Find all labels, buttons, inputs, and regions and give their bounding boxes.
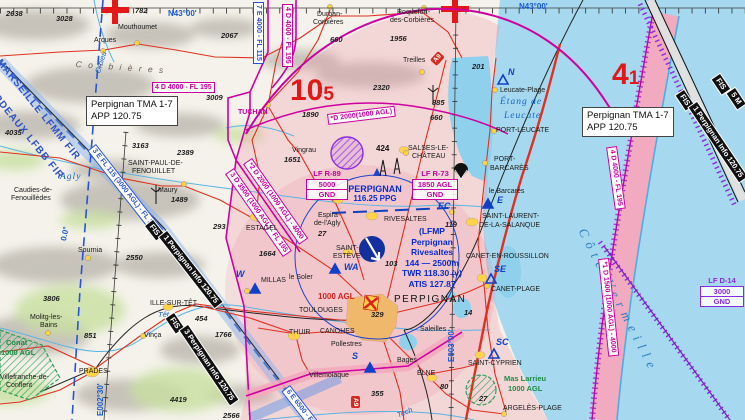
vfr-point-ec: EC (438, 202, 451, 211)
vor-label: PERPIGNAN 116.25 PPG (342, 184, 408, 203)
spot-660-durban: 660 (330, 36, 343, 44)
max-elev-west: 105 (290, 74, 334, 108)
airport-atis: ATIS 127.87 (402, 279, 462, 290)
max-elev-west-sub: 5 (323, 84, 334, 105)
spot-355: 355 (371, 390, 384, 398)
reserve-conat-2: 1000 AGL (1, 349, 35, 357)
tma-note-west: Perpignan TMA 1-7 APP 120.75 (86, 96, 178, 126)
asp-4d-top: 4 D 4000 - FL 195 (282, 4, 293, 67)
area-lfr73: LF R-73 1850 AGL GND (412, 169, 458, 200)
town-st-laurent-2: DE-LA-SALANQUE (479, 222, 540, 229)
town-port-barcares-2: BARCARÈS (490, 165, 529, 172)
town-elne: ELNE (417, 370, 435, 377)
spot-4419: 4419 (170, 396, 187, 404)
airport-name2: Rivesaltes (402, 247, 462, 258)
area-lfd14-upper: 3000 (701, 287, 743, 297)
town-sournia: Sournia (78, 247, 102, 254)
town-canohes: CANOHES (320, 328, 355, 335)
etang-leucate-1: Étang de (500, 98, 542, 108)
reserve-conat-1: Conat (6, 339, 27, 347)
spot-2550: 2550 (126, 254, 143, 262)
spot-885: 885 (432, 99, 445, 107)
town-millas: MILLAS (261, 277, 286, 284)
town-ille-sur-tet: ILLE-SUR-TÊT (150, 300, 197, 307)
spot-2067: 2067 (221, 32, 238, 40)
town-le-barcares: le Barcarès (489, 188, 524, 195)
obstacle-424: 424 (376, 145, 389, 153)
spot-1890: 1890 (302, 111, 319, 119)
town-prades: PRADES (79, 368, 108, 375)
tma-note-east: Perpignan TMA 1-7 APP 120.75 (582, 107, 674, 137)
spot-329: 329 (371, 311, 384, 319)
town-caudies-1: Caudies-de- (14, 187, 52, 194)
spot-4035: 4035 (5, 129, 22, 137)
town-espira-2: de-l'Agly (314, 220, 341, 227)
airport-name1: Perpignan (402, 237, 462, 248)
reserve-mas-larrieu-1: Mas Larrieu (504, 375, 546, 383)
spot-201: 201 (472, 63, 485, 71)
town-port-leucate: PORT-LEUCATE (496, 127, 549, 134)
closed-airfield-marker (363, 295, 379, 311)
town-st-paul-2: FENOUILLET (132, 168, 175, 175)
town-salses-1: SALSES-LE- (408, 145, 448, 152)
area-lfd14-id: LF D-14 (700, 276, 744, 285)
etang-leucate-2: Leucate (504, 112, 541, 122)
city-perpignan: PERPIGNAN (394, 295, 466, 306)
spot-2638: 2638 (6, 10, 23, 18)
town-rivesaltes: RIVESALTES (384, 216, 427, 223)
town-st-paul-1: SAINT-PAUL-DE- (128, 160, 183, 167)
spot-782: 782 (135, 7, 148, 15)
vor-freq: 116.25 PPG (342, 194, 408, 203)
spot-454: 454 (195, 315, 208, 323)
town-mouthoumet: Mouthoumet (118, 24, 157, 31)
airport-symbol-lfmp (359, 236, 385, 262)
town-estagel: ESTAGEL (246, 225, 278, 232)
area-lfr89-upper: 5000 (307, 180, 347, 190)
lat-label-west: N43°00' (168, 10, 197, 18)
lon-label-west: E002°30' (97, 383, 105, 416)
max-elev-east: 41 (612, 58, 639, 92)
vor-name: PERPIGNAN (342, 184, 408, 194)
asp-7e-top: 7 E 4000 - FL 115 (253, 2, 264, 64)
town-roquefort-1: Roquefort- (397, 9, 430, 16)
vfr-point-n: N (508, 68, 515, 77)
town-thuir: THUIR (289, 329, 310, 336)
vfr-point-e: E (497, 196, 503, 205)
town-maury: Maury (158, 187, 177, 194)
town-vingrau: Vingrau (292, 147, 316, 154)
asp-4d-west: 4 D 4000 - FL 195 (152, 82, 215, 93)
spot-3009: 3009 (206, 94, 223, 102)
spot-1956: 1956 (390, 35, 407, 43)
spot-1766: 1766 (215, 331, 232, 339)
spot-3028: 3028 (56, 15, 73, 23)
tma-note-line1: Perpignan TMA 1-7 (91, 99, 173, 111)
tma-note-line2: APP 120.75 (91, 111, 173, 123)
vfr-point-sc: SC (496, 338, 509, 347)
graticule-cross-west (101, 0, 129, 24)
spot-1651: 1651 (284, 156, 301, 164)
motorway-badge-a9-south: A9 (351, 396, 360, 408)
area-lfd14-lower: GND (701, 297, 743, 306)
spot-1489: 1489 (171, 196, 188, 204)
spot-1664: 1664 (259, 250, 276, 258)
lat-label-east: N43°00' (519, 3, 548, 11)
town-saleilles: Saleilles (420, 326, 446, 333)
area-lfd14: LF D-14 3000 GND (700, 276, 744, 307)
spot-27-argeles: 27 (479, 395, 487, 403)
area-lfr73-lower: GND (413, 190, 457, 199)
spot-2389: 2389 (177, 149, 194, 157)
area-lfr73-upper: 1850 AGL (413, 180, 457, 190)
town-st-esteve-2: ESTÈVE (333, 253, 361, 260)
town-canet-en-roussillon: CANET-EN-ROUSSILLON (466, 253, 549, 260)
town-st-laurent-1: SAINT-LAURENT- (482, 213, 539, 220)
town-port-barcares-1: PORT- (494, 156, 515, 163)
town-molitg-2: Bains (40, 322, 58, 329)
town-tuchan: TUCHAN (238, 109, 268, 116)
town-bages: Bages (397, 357, 417, 364)
town-vinca: Vinça (144, 332, 161, 339)
vfr-point-s: S (352, 352, 358, 361)
max-elev-west-big: 10 (290, 74, 323, 107)
town-st-esteve-1: SAINT- (336, 245, 359, 252)
airport-twr: TWR 118.30 (v) (402, 268, 462, 279)
vfr-point-w: W (236, 270, 245, 279)
spot-27-espira: 27 (318, 230, 326, 238)
vfr-point-wa: WA (344, 263, 359, 272)
city-max-alt: 1000 AGL (318, 293, 355, 301)
activity-zone-circle (331, 137, 363, 169)
spot-103: 103 (385, 260, 398, 268)
spot-80: 80 (440, 383, 448, 391)
town-treilles: Treilles (403, 57, 425, 64)
town-roquefort-2: des-Corbières (390, 17, 434, 24)
spot-3163: 3163 (132, 142, 149, 150)
reserve-mas-larrieu-2: 1000 AGL (508, 385, 542, 393)
town-argeles-plage: ARGELÈS-PLAGE (503, 405, 562, 412)
town-molitg-1: Molitg-les- (30, 314, 62, 321)
town-canet-plage: CANET-PLAGE (491, 286, 540, 293)
town-le-soler: le Soler (289, 274, 313, 281)
town-caudies-2: Fenouillèdes (11, 195, 51, 202)
map-viewport[interactable]: N43°00'N43°00'E002°30'E003°00'0.0°MARSEI… (0, 0, 745, 420)
tma-note-line1: Perpignan TMA 1-7 (587, 110, 669, 122)
spot-293: 293 (213, 223, 226, 231)
river-agly: Agly (60, 173, 81, 183)
airport-dims: 144 — 2500m (402, 258, 462, 269)
area-lfr73-id: LF R-73 (412, 169, 458, 178)
spot-660-treilles: 660 (430, 114, 443, 122)
max-elev-east-big: 4 (612, 58, 629, 91)
tma-note-line2: APP 120.75 (587, 122, 669, 134)
town-toulouges: TOULOUGES (299, 307, 343, 314)
spot-14: 14 (464, 309, 472, 317)
vfr-point-se: SE (494, 265, 506, 274)
town-leucate-plage: Leucate-Plage (500, 87, 545, 94)
town-st-cyprien: SAINT-CYPRIEN (468, 360, 522, 367)
area-lfr89-id: LF R-89 (306, 169, 348, 178)
lon-label-east: E003°00' (448, 329, 456, 362)
airport-icao: (LFMP (402, 226, 462, 237)
town-salses-2: CHÂTEAU (412, 153, 445, 160)
town-durban-2: Corbières (313, 19, 343, 26)
max-elev-east-sub: 1 (629, 68, 640, 89)
town-villefranche-2: Conflent (6, 382, 32, 389)
town-villefranche-1: Villefranche-de- (0, 374, 49, 381)
spot-851: 851 (84, 332, 97, 340)
spot-2320: 2320 (373, 84, 390, 92)
town-villemolaque: Villemolaque (309, 372, 349, 379)
town-durban-1: Durban- (317, 11, 342, 18)
town-arques: Arques (94, 37, 116, 44)
airport-info-block: (LFMP Perpignan Rivesaltes 144 — 2500m T… (402, 226, 462, 289)
area-lfr89-lower: GND (307, 190, 347, 199)
town-espira-1: Espira- (318, 212, 340, 219)
spot-3806: 3806 (43, 295, 60, 303)
town-pollestres: Pollestres (331, 341, 362, 348)
spot-2566: 2566 (223, 412, 240, 420)
